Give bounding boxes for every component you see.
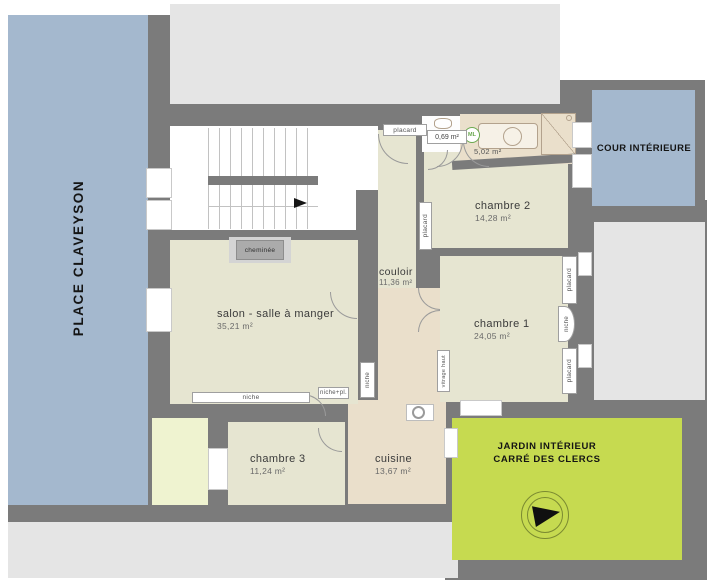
chambre3-name: chambre 3 [250, 453, 306, 466]
shower-head-icon [566, 115, 572, 121]
stair-direction-arrow-icon [294, 198, 307, 208]
salon-area: 35,21 m² [217, 321, 334, 331]
chimney-box: cheminée [236, 240, 284, 260]
chambre1-name: chambre 1 [474, 318, 530, 331]
window [460, 400, 502, 416]
salon-label: salon - salle à manger 35,21 m² [217, 308, 334, 331]
window [146, 288, 172, 332]
place-claveyson-label-wrap: PLACE CLAVEYSON [63, 128, 93, 388]
wc-area-label: 0,69 m² [435, 134, 459, 141]
window [146, 200, 172, 230]
placard-label-right-upper: placard [562, 256, 577, 304]
staircase-upper-flight [208, 128, 318, 176]
window [578, 344, 592, 368]
niche-pl-text: niche+pl. [320, 390, 347, 396]
wall-segment [148, 15, 170, 107]
niche-pl-label: niche+pl. [318, 387, 349, 399]
floor-plan: PLACE CLAVEYSON COUR INTÉRIEURE JARDIN I… [0, 0, 707, 582]
adjacent-building-top [170, 4, 560, 104]
chambre2-label: chambre 2 14,28 m² [475, 200, 531, 223]
window [578, 252, 592, 276]
bathtub-drain-icon [503, 127, 522, 146]
wc-area-badge: 0,69 m² [427, 130, 467, 144]
window [572, 122, 592, 148]
adjacent-building-bottom [8, 522, 458, 578]
wall-segment [8, 505, 458, 522]
window [572, 154, 592, 188]
placard-text: placard [566, 359, 573, 382]
chambre2-name: chambre 2 [475, 200, 531, 213]
jardin-label: JARDIN INTÉRIEUR CARRÉ DES CLERCS [452, 440, 642, 470]
placard-text: placard [422, 214, 429, 237]
window [444, 428, 458, 458]
washing-machine-label: ML [468, 132, 476, 138]
placard-text: placard [566, 268, 573, 291]
niche-label-salon: niche [192, 392, 310, 403]
cour-interieure-label-wrap: COUR INTÉRIEURE [592, 141, 696, 155]
couloir-label: couloir 11,36 m² [379, 266, 413, 287]
window [208, 448, 228, 490]
window [146, 168, 172, 198]
chambre3-area: 11,24 m² [250, 466, 306, 476]
cuisine-label: cuisine 13,67 m² [375, 453, 412, 476]
adjacent-building-right [594, 222, 705, 400]
chambre2-area: 14,28 m² [475, 213, 531, 223]
niche-text: niche [365, 372, 371, 388]
placard-text: placard [393, 127, 416, 134]
chambre3-label: chambre 3 11,24 m² [250, 453, 306, 476]
cuisine-name: cuisine [375, 453, 412, 466]
vitrage-haut-label: vitrage haut [437, 350, 450, 392]
chimney-label: cheminée [245, 247, 276, 254]
placard-label-top: placard [383, 124, 427, 136]
chambre1-label: chambre 1 24,05 m² [474, 318, 530, 341]
wall-segment [356, 190, 380, 236]
vitrage-haut-text: vitrage haut [441, 355, 447, 387]
couloir-area: 11,36 m² [379, 278, 413, 287]
chambre1-area: 24,05 m² [474, 331, 530, 341]
couloir-name: couloir [379, 266, 413, 278]
lightwell-courtyard [152, 418, 208, 505]
jardin-label-line2: CARRÉ DES CLERCS [452, 453, 642, 466]
staircase-landing-wall [208, 176, 318, 185]
jardin-label-line1: JARDIN INTÉRIEUR [452, 440, 642, 453]
niche-label-vertical: niche [360, 362, 375, 398]
niche-text: niche [564, 316, 570, 332]
kitchen-sink-icon [412, 406, 425, 419]
place-claveyson-label: PLACE CLAVEYSON [71, 180, 86, 337]
salon-name: salon - salle à manger [217, 308, 334, 321]
bathroom-area-label: 5,02 m² [474, 147, 502, 156]
cuisine-area: 13,67 m² [375, 466, 412, 476]
placard-label-right-lower: placard [562, 348, 577, 394]
toilet-icon [434, 118, 452, 129]
cour-interieure-label: COUR INTÉRIEURE [597, 143, 691, 154]
niche-text: niche [242, 394, 259, 401]
placard-label-couloir: placard [419, 202, 432, 250]
